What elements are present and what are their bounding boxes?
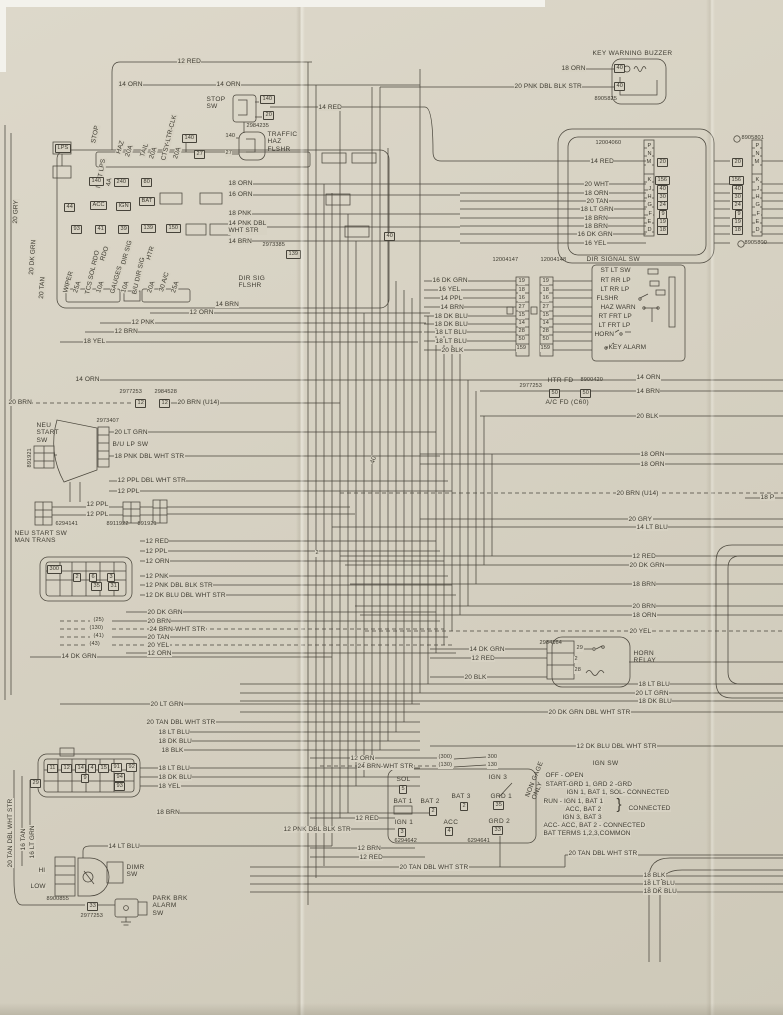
wire-label: 24 BRN-WHT STR (357, 763, 414, 770)
pin-label: J (756, 186, 760, 193)
wire-label: 20 BLK (464, 674, 487, 681)
part-number: 2973407 (96, 418, 119, 424)
pin-label: (300) (438, 754, 453, 761)
wire-label: 12 ORN (189, 309, 214, 316)
wire-label: 12 RED (359, 854, 383, 861)
wire-label: OFF - OPEN (545, 772, 584, 779)
pin-label: P (647, 143, 652, 150)
pin-box: 2 (429, 807, 437, 816)
component-label: } (616, 797, 622, 814)
pin-box: 140 (260, 95, 275, 104)
pin-box: 50 (549, 389, 560, 398)
wire-label: 18 LT BLU (158, 765, 190, 772)
wire-label: 18 BLK (161, 747, 184, 754)
pin-box: 9 (81, 774, 89, 783)
component-label: ACC (443, 819, 459, 826)
pin-box: 2 (460, 802, 468, 811)
wire-label: 20 GRY (628, 516, 653, 523)
wire-label: 16 ORN (228, 191, 253, 198)
wire-label: 12 PNK DBL BLK STR (145, 582, 213, 589)
part-number: 891921 (137, 521, 157, 527)
part-number: 2973385 (262, 242, 285, 248)
wire-label: 18 BRN (584, 223, 608, 230)
wire-label: 14 ORN (216, 81, 241, 88)
wire-label: 18 BLK (643, 872, 666, 879)
component-label: TRAFFIC HAZ FLSHR (267, 131, 298, 153)
wire-label: 18 ORN (640, 451, 665, 458)
pin-label: 18 (542, 287, 549, 294)
wire-label: 12 RED (632, 553, 656, 560)
wire-label: 20 DK GRN (629, 562, 665, 569)
wire-label: 20 TAN DBL WHT STR (568, 850, 638, 857)
pin-box: 12 (61, 764, 72, 773)
wire-label: ST LT SW (600, 267, 631, 274)
wire-label: 12 PNK (145, 573, 169, 580)
component-label: BAT 2 (420, 798, 440, 805)
wire-label: 14 RED (318, 104, 342, 111)
wire-label: 16 TAN (20, 828, 27, 851)
pin-label: N (755, 151, 760, 158)
wire-label: 20 YEL (629, 628, 652, 635)
pin-label: J (648, 186, 652, 193)
wire-label: ACC- ACC, BAT 2 - CONNECTED (543, 822, 646, 829)
wire-label: 12 PNK (131, 319, 155, 326)
wire-label: 14 PNK DBL WHT STR (228, 220, 267, 235)
pin-box: 92 (126, 763, 137, 772)
component-label: NEU START SW MAN TRANS (14, 530, 68, 545)
pin-label: 27 (542, 304, 549, 311)
wire-label: 18 ORN (632, 612, 657, 619)
paper-edge-left (0, 0, 6, 72)
wire-label: 12 PPL (145, 548, 168, 555)
wire-label: 20 WHT (584, 181, 609, 188)
pin-label: 16 (542, 295, 549, 302)
wire-label: 14 BRN (228, 238, 252, 245)
wire-label: LOW (30, 883, 46, 890)
pin-box: 4 (88, 764, 96, 773)
wire-label: 20 LT GRN (635, 690, 669, 697)
pin-label: (130) (438, 762, 453, 769)
wire-label: 12 RED (355, 815, 379, 822)
wire-label: 12 ORN (147, 650, 172, 657)
part-number: 12004147 (492, 257, 519, 263)
pin-box: 240 (114, 178, 129, 187)
wire-label: 20 DK GRN (147, 609, 183, 616)
wire-label: 20 TAN DBL WHT STR (146, 719, 216, 726)
pin-label: (130) (89, 625, 104, 632)
component-label: GRD 1 (490, 793, 513, 800)
pin-box: 40 (614, 82, 625, 91)
pin-box: 6 (89, 573, 97, 582)
pin-label: 50 (518, 336, 525, 343)
wire-label: 20 BLK (441, 347, 464, 354)
component-label: NEU START SW (36, 422, 59, 444)
component-label: HORN RELAY (633, 650, 657, 665)
component-label: IGN 1 (394, 819, 414, 826)
wire-label: 18 DK BLU (158, 774, 192, 781)
wire-label: 4A (105, 177, 114, 187)
component-label: GRD 2 (488, 818, 511, 825)
wire-label: 12 PPL (86, 511, 109, 518)
pin-box: 12 (135, 399, 146, 408)
pin-box: 11 (47, 764, 58, 773)
wire-label: 12 DK BLU DBL WHT STR (145, 592, 226, 599)
pin-box: 20 (657, 158, 668, 167)
wire-label: 12 RED (177, 58, 201, 65)
pin-box: 39 (118, 225, 129, 234)
pin-box: 139 (286, 250, 301, 259)
part-number: 8905825 (594, 96, 617, 102)
pin-box: 4 (445, 827, 453, 836)
wire-label: FLSHR (596, 295, 619, 302)
wire-label: 18 YEL (158, 783, 181, 790)
part-number: 2984164 (539, 640, 562, 646)
pin-box: IGN (116, 202, 131, 211)
component-label: B/U LP SW (112, 441, 149, 448)
pin-label: G (755, 202, 760, 209)
pin-box: 40 (614, 64, 625, 73)
component-label: DIR SIGNAL SW (586, 256, 640, 263)
pin-box: 33 (87, 902, 98, 911)
pin-label: F (648, 211, 653, 218)
wire-label: 18 P (760, 494, 775, 501)
paper-edge-top (0, 0, 545, 7)
pin-label: (41) (93, 633, 104, 640)
part-number: 8900855 (46, 896, 69, 902)
pin-label: 28 (574, 667, 581, 674)
wire-label: 14 RED (590, 158, 614, 165)
pin-box: 41 (95, 225, 106, 234)
part-number: 12004148 (540, 257, 567, 263)
pin-box: 94 (114, 773, 125, 782)
wire-label: 12 ORN (350, 755, 375, 762)
wire-label: LT RR LP (600, 286, 630, 293)
wire-label: 12 PNK DBL BLK STR (283, 826, 351, 833)
pin-box: 29 (30, 779, 41, 788)
component-label: DIMR SW (126, 864, 145, 879)
wire-label: 20 LT GRN (150, 701, 184, 708)
wire-label: 20 TAN DBL WHT STR (399, 864, 469, 871)
wire-label: RT FRT LP (598, 313, 632, 320)
wire-label: 14 ORN (118, 81, 143, 88)
pin-box: 18 (732, 226, 743, 235)
pin-box: LPS (55, 144, 71, 153)
paper-shadow-bottom (0, 1003, 783, 1015)
pin-label: 2 (315, 550, 319, 557)
pin-box: 50 (580, 389, 591, 398)
pin-box: 18 (657, 226, 668, 235)
wire-label: 18 ORN (228, 180, 253, 187)
wire-label: 18 LT BLU (638, 681, 670, 688)
pin-box: 80 (141, 178, 152, 187)
pin-label: H (755, 194, 760, 201)
component-label: BAT 3 (451, 793, 471, 800)
wire-label: 14 BRN (440, 304, 464, 311)
wire-label: 18 LT BLU (643, 880, 675, 887)
pin-box: 35 (493, 801, 504, 810)
wire-label: 12 BRN (114, 328, 138, 335)
wire-label: 20 YEL (147, 642, 170, 649)
part-number: 8911922 (106, 521, 129, 527)
pin-label: 28 (542, 328, 549, 335)
pin-box: 33 (492, 826, 503, 835)
pin-label: 27 (225, 150, 232, 157)
wire-label: 20 TAN DBL WHT STR (7, 798, 14, 868)
pin-label: H (647, 194, 652, 201)
pin-label: 19 (542, 278, 549, 285)
pin-label: 15 (518, 312, 525, 319)
pin-box: 93 (71, 225, 82, 234)
wire-label: 18 DK BLU (638, 698, 672, 705)
wire-label: 18 LT GRN (580, 206, 614, 213)
wire-label: ACC, BAT 2 (565, 806, 602, 813)
pin-label: P (755, 143, 760, 150)
wire-label: KEY ALARM (608, 344, 647, 351)
wire-label: RT RR LP (600, 277, 631, 284)
component-label: IGN SW (592, 760, 619, 767)
part-number: 6294642 (394, 838, 417, 844)
wire-label: 12 RED (471, 655, 495, 662)
pin-label: 130 (487, 762, 498, 769)
part-number: 12004060 (595, 140, 622, 146)
pin-box: 156 (729, 176, 744, 185)
wire-label: 18 BRN (632, 581, 656, 588)
wire-label: HI (38, 867, 46, 874)
wire-label: 14 DK GRN (469, 646, 505, 653)
part-number: 2977253 (80, 913, 103, 919)
pin-label: (25) (93, 617, 104, 624)
pin-label: K (755, 177, 760, 184)
wire-label: 14 BRN (215, 301, 239, 308)
component-label: IGN 3 (488, 774, 508, 781)
pin-label: 16 (518, 295, 525, 302)
pin-box: 150 (166, 224, 181, 233)
wire-label: 18 DK BLU (158, 738, 192, 745)
pin-label: F (756, 211, 761, 218)
wire-label: HORN (594, 331, 615, 338)
wire-label: 18 LT BLU (435, 338, 467, 345)
wire-label: 14 DK GRN (61, 653, 97, 660)
wire-label: 12 RED (145, 538, 169, 545)
part-number: 891921 (27, 448, 33, 468)
pin-label: 50 (542, 336, 549, 343)
pin-box: 3 (398, 828, 406, 837)
wire-label: 20 BRN (U14) (177, 399, 220, 406)
pin-box: 14 (75, 764, 86, 773)
pin-label: 28 (518, 328, 525, 335)
wire-label: 20 DK GRN DBL WHT STR (548, 709, 631, 716)
pin-label: 14 (518, 320, 525, 327)
wire-label: 14 PPL (440, 295, 463, 302)
wire-label: 14 ORN (636, 374, 661, 381)
wiring-diagram-page: 12 RED14 ORN14 ORNSTOP SW14020298423514 … (0, 0, 783, 1015)
wire-label: 12 DK BLU DBL WHT STR (576, 743, 657, 750)
part-number: 6294641 (467, 838, 490, 844)
component-label: HTR FD (547, 377, 574, 384)
wire-label: 20 BRN (147, 618, 171, 625)
wire-label: IGN 3, BAT 3 (562, 814, 602, 821)
pin-label: M (646, 159, 652, 166)
wire-label: 20 GRY (12, 199, 20, 224)
pin-box: 93 (114, 782, 125, 791)
pin-label: 29 (576, 645, 583, 652)
pin-label: G (647, 202, 652, 209)
part-number: 2984528 (154, 389, 177, 395)
wire-label: 16 DK GRN (432, 277, 468, 284)
wire-label: 18 YEL (83, 338, 106, 345)
pin-box: 140 (89, 177, 104, 186)
wire-label: 18 PNK DBL WHT STR (114, 453, 185, 460)
component-label: SOL (396, 776, 411, 783)
wire-label: 20 TAN (586, 198, 609, 205)
pin-label: 19 (518, 278, 525, 285)
wire-label: 18 ORN (640, 461, 665, 468)
pin-box: 20 (732, 158, 743, 167)
wire-label: 18 DK BLU (434, 313, 468, 320)
part-number: 2984235 (246, 123, 269, 129)
wire-label: 14 ORN (75, 376, 100, 383)
part-number: 6294141 (55, 521, 78, 527)
part-number: 8900420 (580, 377, 603, 383)
component-label: KEY WARNING BUZZER (592, 50, 673, 57)
wire-label: 18 DK BLU (434, 321, 468, 328)
part-number: 2977253 (519, 383, 542, 389)
wire-label: 24 BRN-WHT STR (149, 626, 206, 633)
wire-label: 18 DK BLU (643, 888, 677, 895)
wire-label: 18 LT BLU (158, 729, 190, 736)
wire-label: 18 BRN (156, 809, 180, 816)
pin-label: 15 (542, 312, 549, 319)
wire-label: RUN - IGN 1, BAT 1 (543, 798, 604, 805)
pin-box: 5 (399, 785, 407, 794)
component-label: DIR SIG FLSHR (238, 275, 266, 290)
pin-label: 2 (574, 656, 578, 663)
pin-box: 91 (111, 763, 122, 772)
pin-box: 35 (91, 582, 102, 591)
wire-label: 18 LT BLU (435, 329, 467, 336)
pin-box: 156 (655, 176, 670, 185)
pin-box: 140 (182, 134, 197, 143)
wire-label: 18 ORN (561, 65, 586, 72)
pin-label: (43) (89, 641, 100, 648)
pin-box: 15 (98, 764, 109, 773)
pin-label: N (647, 151, 652, 158)
pin-label: 159 (516, 345, 527, 352)
component-label: A/C FD (C60) (545, 399, 590, 406)
wire-label: HAZ WARN (600, 304, 636, 311)
wire-label: 20 BRN (632, 603, 656, 610)
pin-box: 139 (141, 224, 156, 233)
pin-label: K (647, 177, 652, 184)
wire-label: 12 PPL DBL WHT STR (117, 477, 186, 484)
wire-label: BAT TERMS 1,2,3,COMMON (543, 830, 631, 837)
wire-label: 20 BLK (636, 413, 659, 420)
wire-label: START-GRD 1, GRD 2 -GRD (545, 781, 633, 788)
wire-label: 18 ORN (584, 190, 609, 197)
wire-label: CONNECTED (628, 805, 671, 812)
pin-box: 2 (73, 573, 81, 582)
pin-box: 44 (64, 203, 75, 212)
wire-label: 20 BRN (U14) (616, 490, 659, 497)
wire-label: 20 LT GRN (114, 429, 148, 436)
pin-box: 24 (732, 201, 743, 210)
pin-box: 24 (657, 201, 668, 210)
wire-label: 20 BRN (8, 399, 32, 406)
wire-label: 18 PNK (228, 210, 252, 217)
wire-label: 12 ORN (145, 558, 170, 565)
component-label: PARK BRK ALARM SW (152, 895, 188, 917)
wire-label: 12 PPL (117, 488, 140, 495)
part-number: 8905800 (744, 240, 767, 246)
pin-box: 300 (47, 565, 62, 574)
pin-box: 31 (108, 582, 119, 591)
wire-label: 14 LT BLU (108, 843, 140, 850)
wire-label: 14 BRN (636, 388, 660, 395)
pin-box: 3 (107, 573, 115, 582)
part-number: 8905801 (741, 135, 764, 141)
wire-label: LT FRT LP (598, 322, 631, 329)
pin-box: 40 (384, 232, 395, 241)
pin-label: 27 (518, 304, 525, 311)
pin-label: 300 (487, 754, 498, 761)
wire-label: 12 BRN (357, 845, 381, 852)
pin-box: 20 (263, 111, 274, 120)
wire-label: 20 TAN (147, 634, 170, 641)
wire-label: 16 DK GRN (577, 231, 613, 238)
wire-label: 14 LT BLU (636, 524, 668, 531)
pin-label: 159 (540, 345, 551, 352)
pin-label: 14 (542, 320, 549, 327)
pin-box: BAT (139, 197, 155, 206)
pin-label: D (755, 227, 760, 234)
wire-label: 12 PPL (86, 501, 109, 508)
pin-label: M (754, 159, 760, 166)
pin-label: E (755, 219, 760, 226)
wire-label: 16 YEL (584, 240, 607, 247)
pin-box: 27 (194, 150, 205, 159)
component-label: STOP SW (206, 96, 226, 111)
pin-label: D (647, 227, 652, 234)
pin-box: 12 (159, 399, 170, 408)
component-label: BAT 1 (393, 798, 413, 805)
wire-label: 16 LT GRN (29, 825, 36, 859)
wire-label: 20 PNK DBL BLK STR (514, 83, 582, 90)
pin-label: E (647, 219, 652, 226)
wire-label: 16 YEL (438, 286, 461, 293)
pin-box: ACC (90, 201, 107, 210)
pin-label: 18 (518, 287, 525, 294)
pin-label: 140 (225, 133, 236, 140)
part-number: 2977253 (119, 389, 142, 395)
wire-label: 18 BRN (584, 215, 608, 222)
